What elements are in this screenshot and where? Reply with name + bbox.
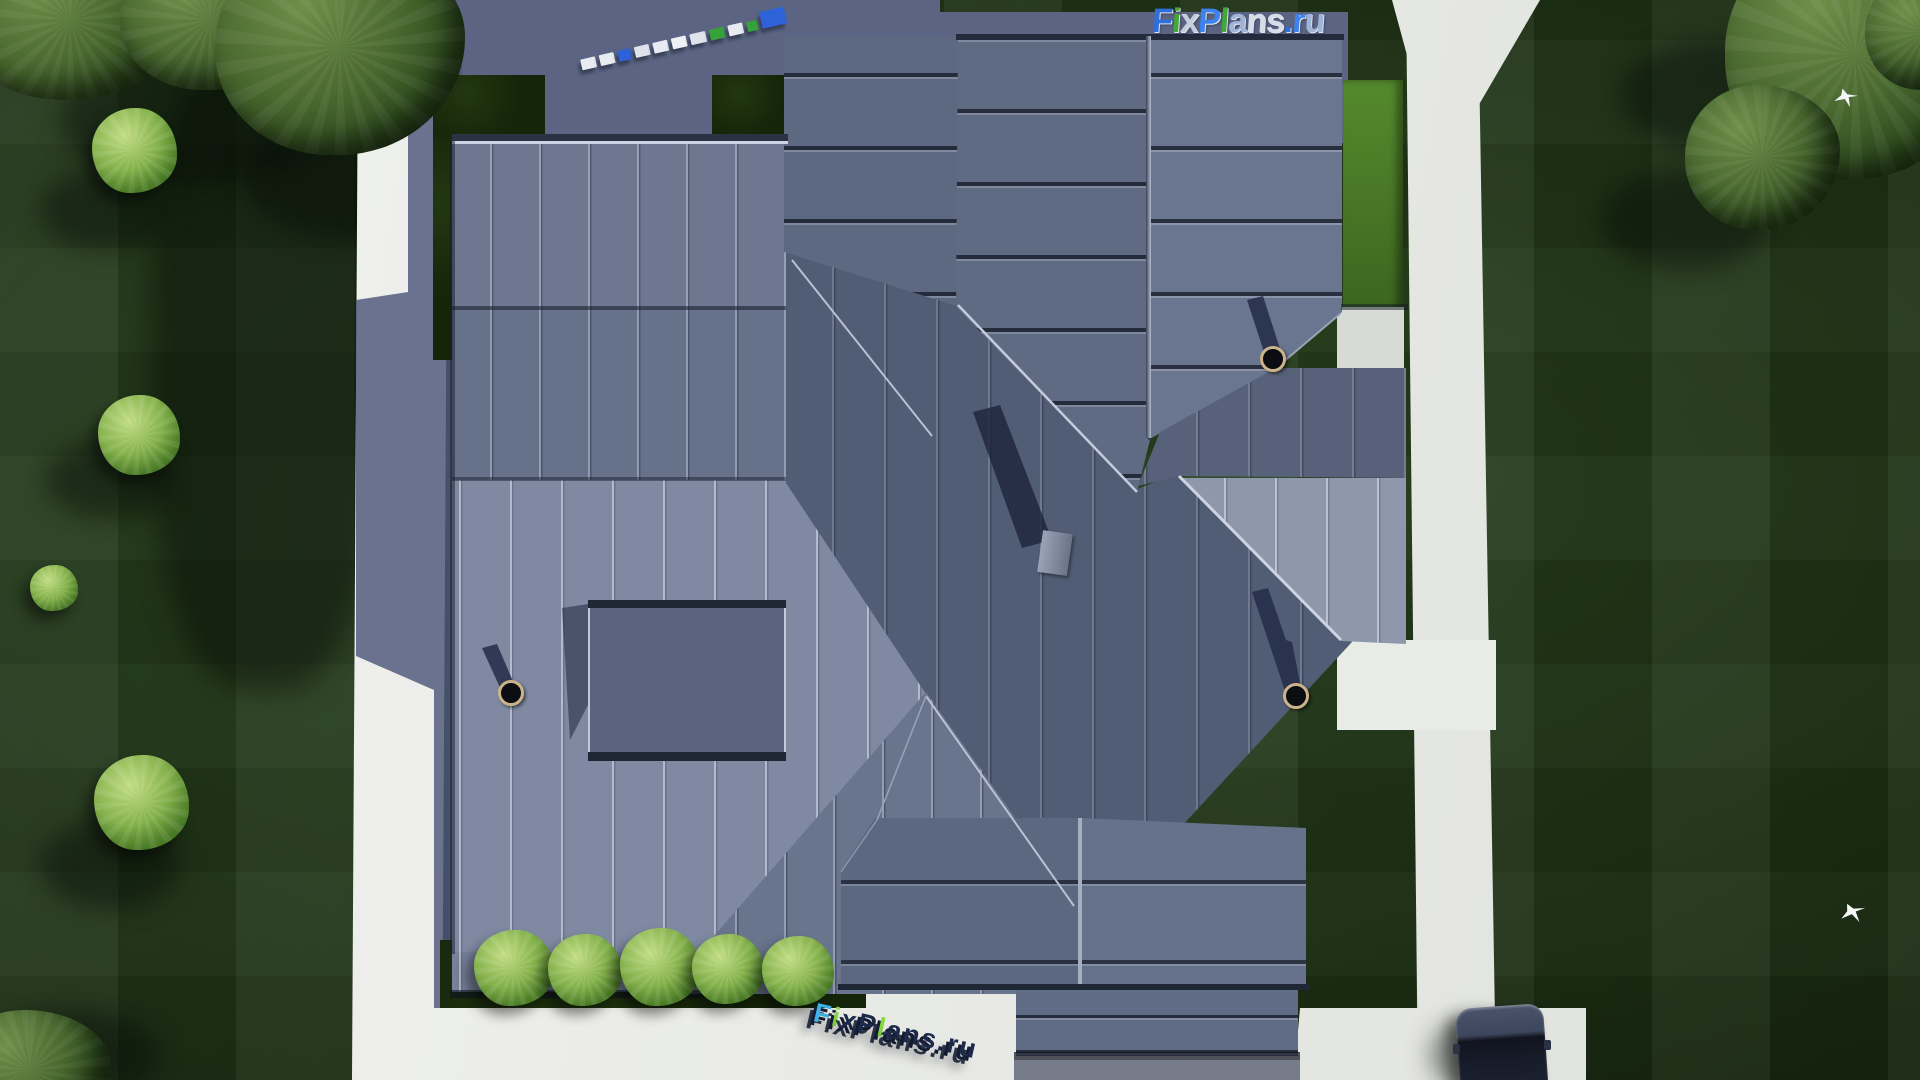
- brand-letter: P: [1197, 2, 1221, 41]
- chimney-pipe: [1260, 346, 1286, 372]
- brand-letter: u: [1303, 2, 1326, 41]
- roof-vent-box: [1037, 530, 1073, 576]
- shrub: [548, 934, 622, 1006]
- car-mirror: [1453, 1044, 1460, 1054]
- car-mirror: [1544, 1040, 1551, 1050]
- watermark-logo: FixPlans.ru: [1151, 2, 1326, 41]
- bush: [98, 395, 180, 475]
- shrub: [692, 934, 764, 1004]
- bush: [94, 755, 189, 850]
- aerial-render: FixPlans.ru FixPlans.ru: [0, 0, 1920, 1080]
- skylight-panel: [588, 603, 786, 760]
- shrub: [474, 930, 554, 1006]
- chimney-pipe: [1283, 683, 1309, 709]
- parked-car: [1458, 1006, 1546, 1080]
- bush: [92, 108, 177, 193]
- chimney-pipe: [498, 680, 524, 706]
- shrub: [620, 928, 700, 1006]
- bush-small: [30, 565, 78, 611]
- roof-ridge-lines: [0, 0, 1920, 1080]
- car-body: [1455, 1003, 1549, 1080]
- shrub: [762, 936, 834, 1006]
